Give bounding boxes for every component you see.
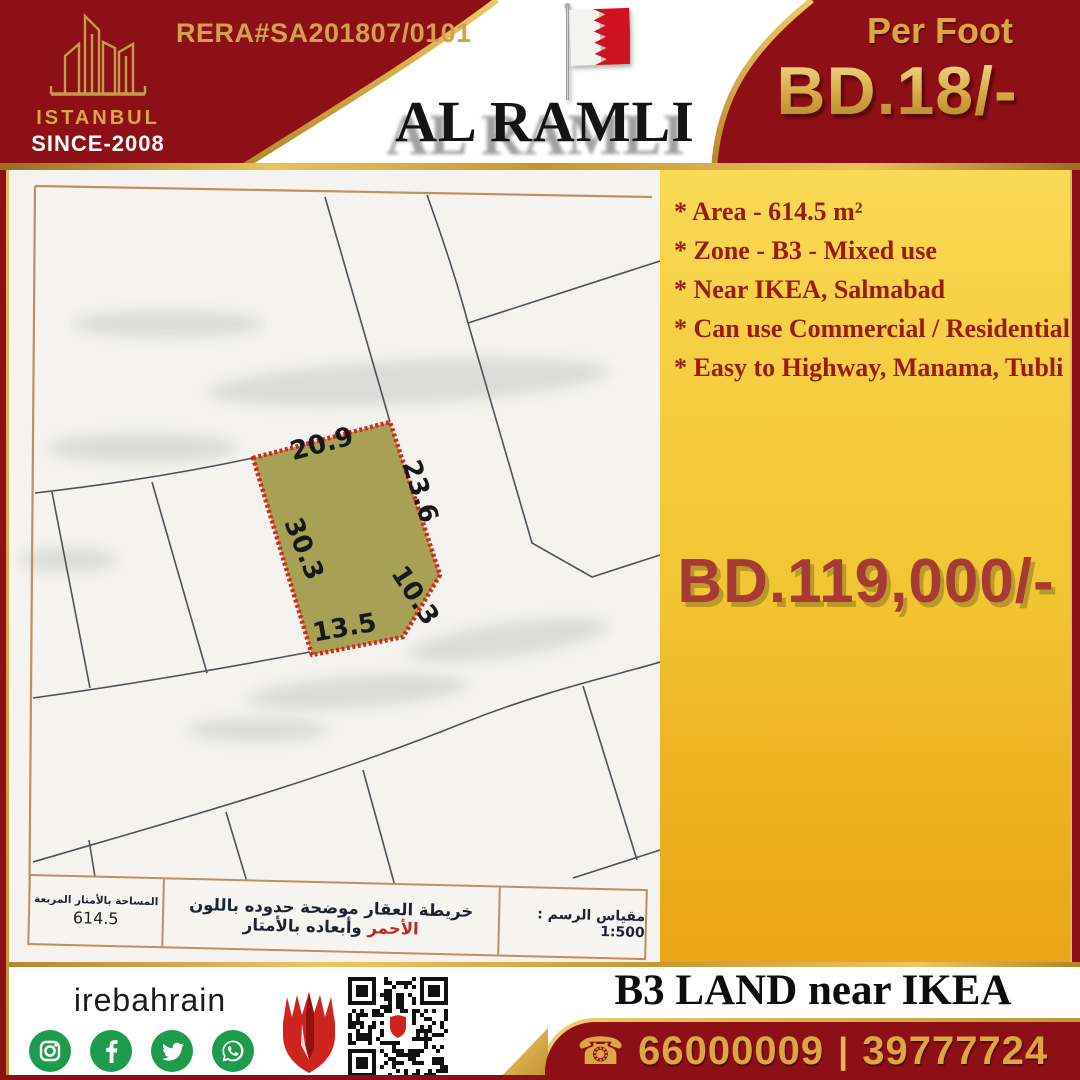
- right-border: [1072, 170, 1080, 962]
- whatsapp-icon[interactable]: [212, 1030, 254, 1072]
- left-border-gold: [6, 170, 9, 1080]
- per-foot-label: Per Foot: [820, 10, 1060, 52]
- brand-name: ISTANBUL: [18, 107, 178, 130]
- feature-access: * Easy to Highway, Manama, Tubli: [674, 355, 1066, 381]
- feature-zone: * Zone - B3 - Mixed use: [674, 238, 1066, 264]
- twitter-icon[interactable]: [151, 1030, 193, 1072]
- map-legend-table: المساحة بالأمتار المربعة 614.5 خريطة الع…: [27, 874, 648, 960]
- social-icons: [29, 1030, 254, 1072]
- table-cell-description: خريطة العقار موضحة حدوده باللون الأحمر و…: [163, 879, 501, 954]
- feature-usage: * Can use Commercial / Residential: [674, 316, 1066, 342]
- brand-logo: ISTANBUL SINCE-2008: [18, 4, 178, 157]
- area-value: 614.5: [73, 908, 119, 928]
- desc-red-word: الأحمر: [367, 918, 419, 938]
- desc-text-end: وأبعاده بالأمتار: [243, 915, 362, 937]
- rera-number: RERA#SA201807/0101: [176, 18, 472, 49]
- real-estate-flyer: ISTANBUL SINCE-2008 RERA#SA201807/0101 A…: [0, 0, 1080, 1080]
- feature-area: * Area - 614.5 m²: [674, 199, 1066, 225]
- phone-number-2[interactable]: 39777724: [862, 1029, 1048, 1074]
- listing-tagline: B3 LAND near IKEA: [556, 966, 1070, 1015]
- feature-list: * Area - 614.5 m² * Zone - B3 - Mixed us…: [674, 199, 1066, 394]
- total-price: BD.119,000/-: [660, 546, 1072, 617]
- buildings-icon: [43, 4, 153, 104]
- details-panel: * Area - 614.5 m² * Zone - B3 - Mixed us…: [660, 170, 1072, 962]
- social-handle: irebahrain: [50, 982, 250, 1019]
- phone-separator: |: [838, 1030, 848, 1072]
- gold-wedge-accent: [498, 1028, 548, 1080]
- survey-map: 20.9 23.6 30.3 10.3 13.5 المساحة بالأمتا…: [8, 170, 660, 962]
- phone-number-1[interactable]: 66000009: [638, 1029, 824, 1074]
- feature-location: * Near IKEA, Salmabad: [674, 277, 1066, 303]
- header: ISTANBUL SINCE-2008 RERA#SA201807/0101 A…: [0, 0, 1080, 170]
- survey-map-drawing: 20.9 23.6 30.3 10.3 13.5: [8, 170, 660, 962]
- table-cell-scale: مقياس الرسم : 1:500: [500, 888, 646, 959]
- table-cell-area: المساحة بالأمتار المربعة 614.5: [29, 876, 164, 946]
- per-foot-price: BD.18/-: [722, 52, 1072, 130]
- telephone-icon: ☎: [577, 1032, 624, 1070]
- area-label: المساحة بالأمتار المربعة: [34, 893, 159, 908]
- footer: irebahrain: [0, 962, 1080, 1080]
- bottom-border: [0, 1075, 1080, 1080]
- scale-text: مقياس الرسم : 1:500: [500, 905, 645, 941]
- facebook-icon[interactable]: [90, 1030, 132, 1072]
- page-title: AL RAMLI: [355, 88, 735, 155]
- phone-band: ☎ 66000009 | 39777724: [545, 1022, 1080, 1080]
- qr-code: [346, 975, 450, 1080]
- brand-since: SINCE-2008: [18, 131, 178, 157]
- agency-shield-logo: [279, 989, 339, 1080]
- instagram-icon[interactable]: [29, 1030, 71, 1072]
